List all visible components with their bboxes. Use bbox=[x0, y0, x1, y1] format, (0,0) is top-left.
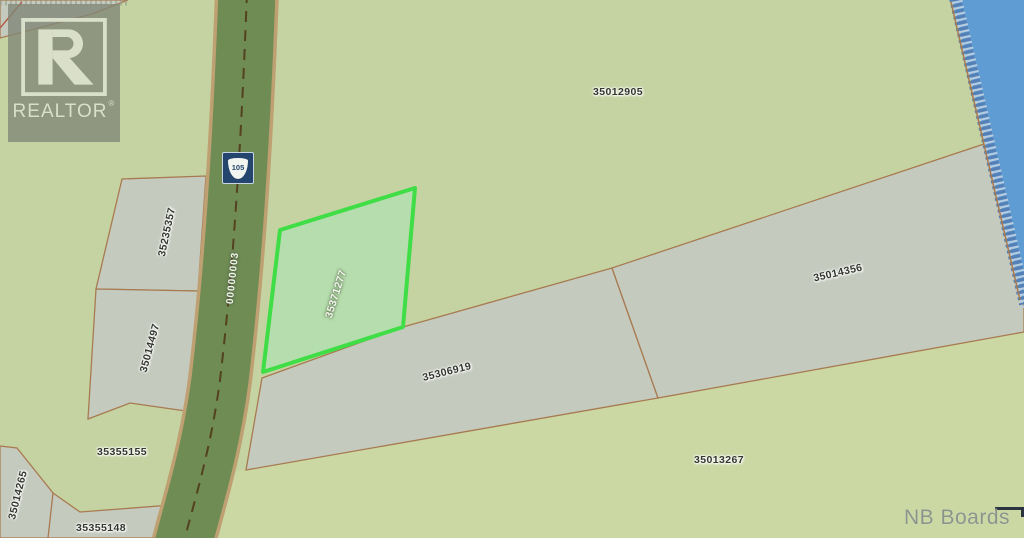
parcel-label: 35355155 bbox=[97, 446, 147, 458]
parcel-label: 35012905 bbox=[593, 86, 643, 98]
parcel-label: 35013267 bbox=[694, 454, 744, 466]
parcel-polygon bbox=[96, 176, 206, 291]
route-shield: 105 bbox=[222, 152, 254, 184]
map-shapes bbox=[0, 0, 1024, 538]
parcel-polygon bbox=[0, 446, 53, 538]
parcel-label: 35355148 bbox=[76, 522, 126, 534]
map-canvas: REALTOR ® 105 35012905 35235357 35014497… bbox=[0, 0, 1024, 538]
route-number: 105 bbox=[232, 164, 245, 172]
watermark-brand: REALTOR bbox=[13, 102, 108, 121]
realtor-r-icon bbox=[21, 18, 107, 96]
route-shield-icon: 105 bbox=[228, 158, 248, 179]
realtor-watermark: REALTOR ® bbox=[8, 4, 120, 142]
registered-mark: ® bbox=[109, 100, 116, 108]
map-credit: NB Boards bbox=[904, 506, 1010, 530]
